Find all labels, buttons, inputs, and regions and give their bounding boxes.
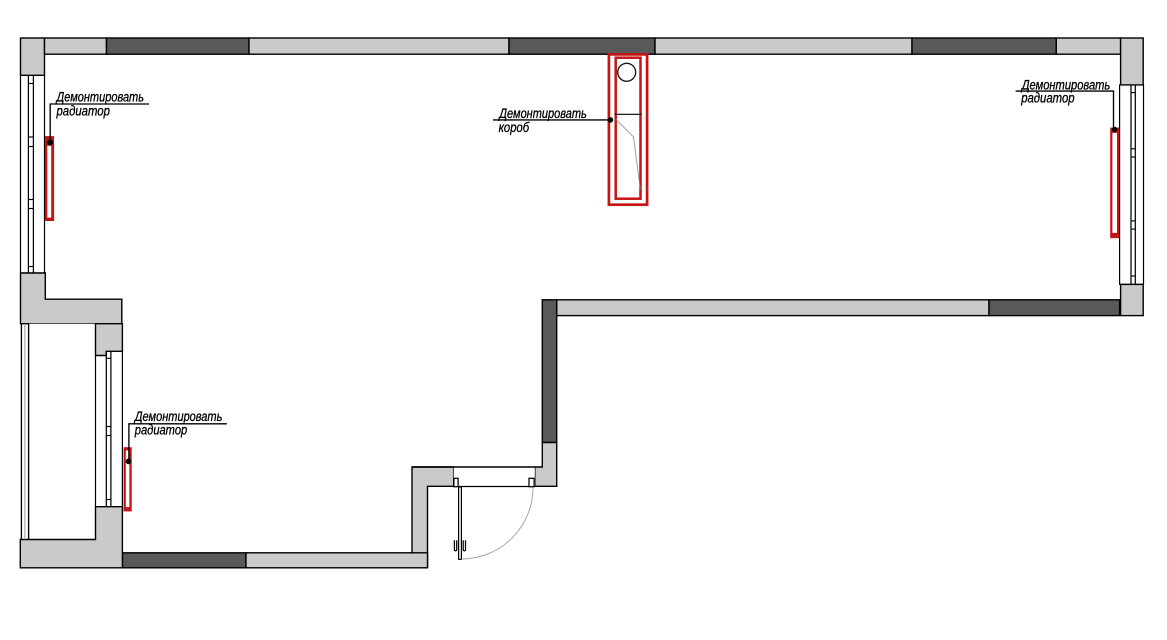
svg-text:радиатор: радиатор xyxy=(134,423,188,438)
svg-text:короб: короб xyxy=(499,120,530,135)
svg-text:Демонтировать: Демонтировать xyxy=(498,106,587,121)
svg-text:радиатор: радиатор xyxy=(56,103,111,118)
svg-text:радиатор: радиатор xyxy=(1020,90,1075,105)
svg-text:Демонтировать: Демонтировать xyxy=(55,90,144,105)
